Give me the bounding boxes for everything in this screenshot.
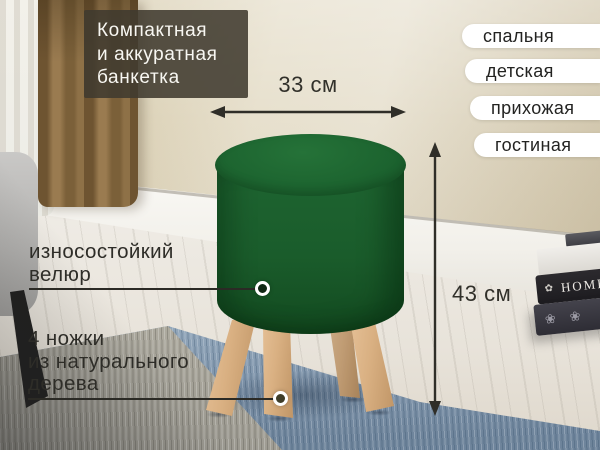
callout-velour-dot <box>255 281 270 296</box>
flower-icon: ❀ <box>569 308 582 325</box>
callout-legs-pointer-line <box>28 398 275 400</box>
callout-line-text: 4 ножки <box>28 328 189 351</box>
room-tag-label: спальня <box>483 26 554 47</box>
product-photo-canvas: ✿ HOME ❀ ❀ Компактная и аккуратная банке… <box>0 0 600 450</box>
vertical-arrow-icon <box>424 140 446 418</box>
callout-line-text: из натурального <box>28 351 189 374</box>
room-tag-label: прихожая <box>491 98 574 119</box>
callout-velour-pointer-line <box>29 288 257 290</box>
callout-line-text: дерева <box>28 373 189 396</box>
width-dimension-label: 33 см <box>208 72 408 98</box>
room-tag-kids: детская <box>465 59 600 83</box>
book-spine-label: HOME <box>560 275 600 296</box>
room-tag-hallway: прихожая <box>470 96 600 120</box>
room-tag-bedroom: спальня <box>462 24 600 48</box>
callout-velour: износостойкий велюр <box>29 241 174 286</box>
height-dimension-label: 43 см <box>452 281 511 307</box>
callout-line-text: велюр <box>29 264 174 287</box>
headline-line: и аккуратная <box>97 43 240 67</box>
callout-line-text: износостойкий <box>29 241 174 264</box>
flower-icon: ❀ <box>544 310 557 327</box>
room-tag-livingroom: гостиная <box>474 133 600 157</box>
callout-legs: 4 ножки из натурального дерева <box>28 328 189 396</box>
stool-top <box>215 134 406 196</box>
book-stack: ✿ HOME ❀ ❀ <box>536 240 600 349</box>
room-tag-label: гостиная <box>495 135 571 156</box>
headline-line: Компактная <box>97 19 240 43</box>
room-tag-label: детская <box>486 61 554 82</box>
book-ornament-icon: ✿ <box>544 283 555 295</box>
callout-legs-dot <box>273 391 288 406</box>
horizontal-arrow-icon <box>208 102 408 122</box>
